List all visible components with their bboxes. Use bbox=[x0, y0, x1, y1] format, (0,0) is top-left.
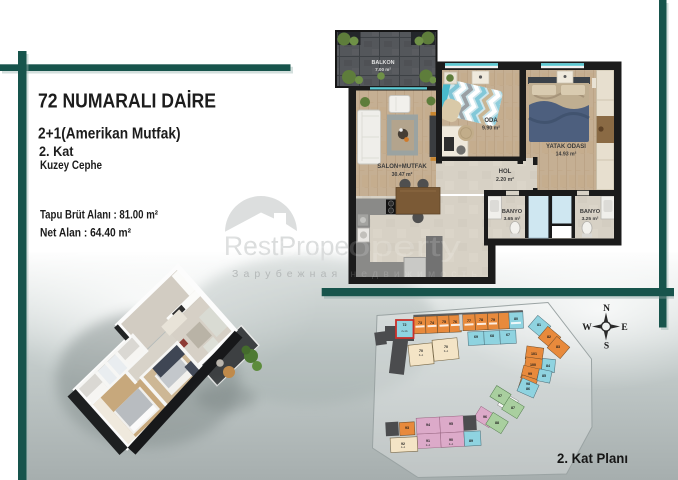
svg-text:77: 77 bbox=[467, 319, 471, 323]
svg-text:2+1A: 2+1A bbox=[401, 329, 407, 333]
svg-text:96: 96 bbox=[483, 415, 487, 419]
svg-text:2+1: 2+1 bbox=[449, 442, 454, 446]
svg-text:BALKON: BALKON bbox=[371, 60, 394, 66]
svg-text:86: 86 bbox=[526, 387, 530, 391]
svg-text:Tapu Brüt Alanı : 81.00 m²: Tapu Brüt Alanı : 81.00 m² bbox=[40, 208, 158, 222]
svg-text:72 NUMARALI DAİRE: 72 NUMARALI DAİRE bbox=[38, 90, 216, 113]
svg-text:3+1: 3+1 bbox=[444, 349, 449, 353]
svg-text:2. Kat Planı: 2. Kat Planı bbox=[557, 450, 628, 466]
svg-text:91: 91 bbox=[426, 439, 430, 443]
svg-text:E: E bbox=[621, 323, 627, 333]
svg-text:30.47 m²: 30.47 m² bbox=[392, 172, 413, 178]
svg-text:89: 89 bbox=[469, 439, 473, 443]
svg-text:78: 78 bbox=[479, 318, 483, 322]
svg-text:74: 74 bbox=[430, 321, 434, 325]
svg-text:98: 98 bbox=[526, 382, 530, 386]
svg-text:YATAK ODASI: YATAK ODASI bbox=[546, 144, 586, 150]
svg-text:BANYO: BANYO bbox=[502, 209, 523, 215]
svg-text:2.20 m²: 2.20 m² bbox=[496, 177, 514, 183]
svg-text:14.93 m²: 14.93 m² bbox=[556, 152, 577, 158]
svg-text:3.25 m²: 3.25 m² bbox=[582, 216, 599, 222]
svg-text:80: 80 bbox=[514, 317, 518, 321]
svg-text:90: 90 bbox=[449, 438, 453, 442]
svg-text:82: 82 bbox=[547, 335, 551, 339]
svg-text:2+1(Amerikan Mutfak): 2+1(Amerikan Mutfak) bbox=[38, 126, 181, 143]
svg-text:BANYO: BANYO bbox=[580, 209, 601, 215]
svg-text:HOL: HOL bbox=[499, 169, 512, 175]
svg-text:75: 75 bbox=[442, 320, 446, 324]
svg-text:73: 73 bbox=[418, 321, 422, 325]
svg-text:ODA: ODA bbox=[484, 118, 498, 124]
svg-text:Зарубежная недвижимость: Зарубежная недвижимость bbox=[232, 268, 478, 280]
svg-text:2. Kat: 2. Kat bbox=[39, 144, 74, 159]
svg-text:81: 81 bbox=[537, 323, 541, 327]
svg-text:94: 94 bbox=[426, 423, 430, 427]
svg-text:88: 88 bbox=[495, 421, 499, 425]
svg-text:79: 79 bbox=[491, 318, 495, 322]
svg-text:70: 70 bbox=[444, 345, 448, 349]
svg-text:69: 69 bbox=[474, 335, 478, 339]
svg-text:9.90 m²: 9.90 m² bbox=[482, 126, 500, 132]
svg-text:N: N bbox=[603, 304, 610, 314]
svg-text:SALON+MUTFAK: SALON+MUTFAK bbox=[377, 164, 427, 170]
svg-text:1+1: 1+1 bbox=[401, 445, 406, 449]
svg-text:101: 101 bbox=[531, 352, 537, 356]
svg-text:S: S bbox=[604, 342, 609, 352]
svg-text:Net Alan : 64.40 m²: Net Alan : 64.40 m² bbox=[40, 226, 131, 240]
svg-text:67: 67 bbox=[506, 333, 510, 337]
svg-text:93: 93 bbox=[405, 426, 409, 430]
svg-text:84: 84 bbox=[546, 364, 550, 368]
svg-text:95: 95 bbox=[449, 422, 453, 426]
svg-text:7.00 m²: 7.00 m² bbox=[375, 67, 391, 72]
svg-text:2+1: 2+1 bbox=[426, 443, 431, 447]
svg-text:76: 76 bbox=[453, 320, 457, 324]
svg-text:3.65 m²: 3.65 m² bbox=[504, 216, 521, 222]
svg-text:99: 99 bbox=[528, 372, 532, 376]
svg-text:100: 100 bbox=[530, 363, 536, 367]
svg-text:68: 68 bbox=[490, 334, 494, 338]
svg-text:87: 87 bbox=[511, 406, 515, 410]
svg-text:70: 70 bbox=[419, 349, 423, 353]
svg-text:W: W bbox=[582, 323, 592, 333]
svg-text:3+1: 3+1 bbox=[419, 353, 424, 357]
svg-text:72: 72 bbox=[403, 323, 407, 327]
svg-text:85: 85 bbox=[542, 374, 546, 378]
svg-text:RestProperty: RestProperty bbox=[224, 231, 461, 263]
svg-text:83: 83 bbox=[556, 345, 560, 349]
svg-text:97: 97 bbox=[498, 394, 502, 398]
svg-text:Kuzey Cephe: Kuzey Cephe bbox=[40, 158, 102, 172]
